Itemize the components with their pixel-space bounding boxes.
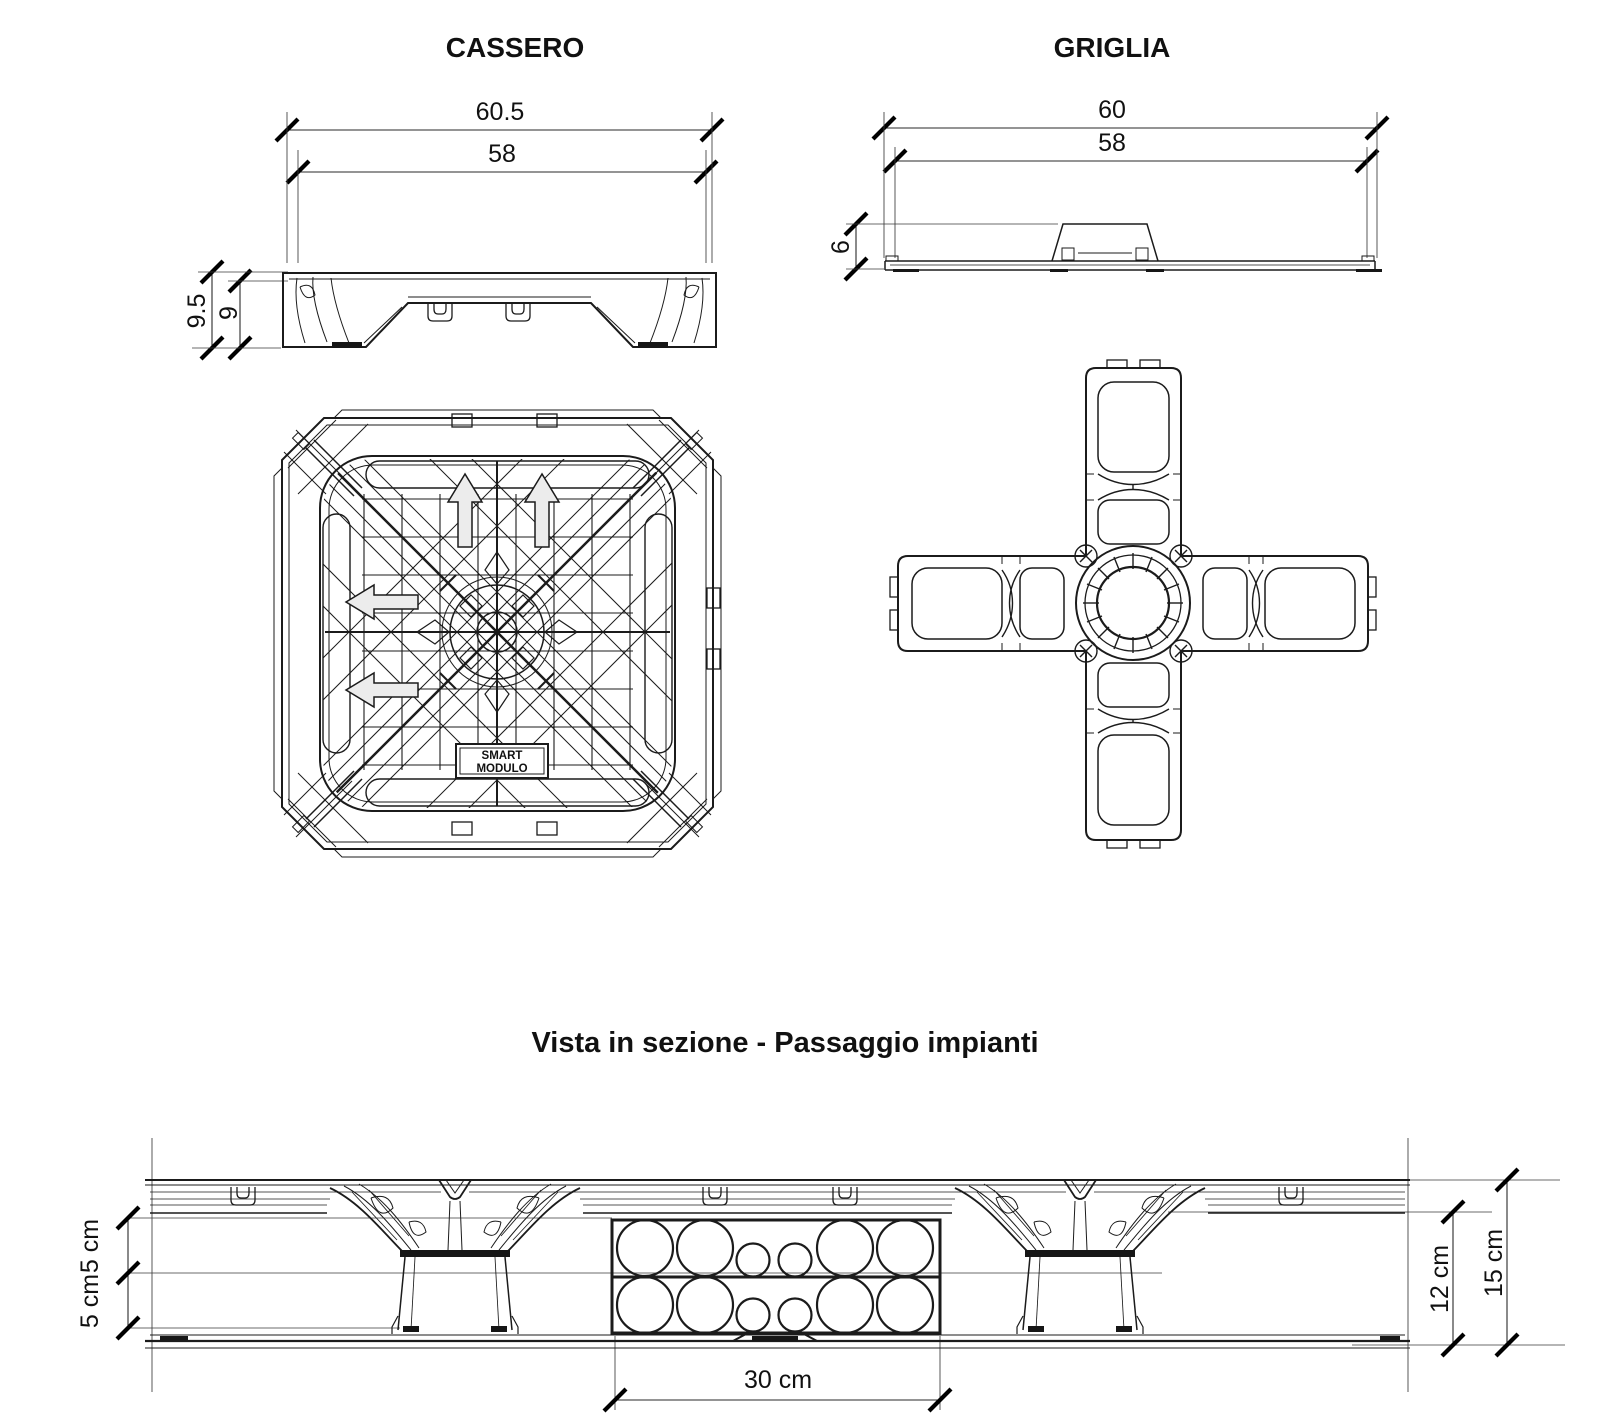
brand-label-line1: SMART — [482, 750, 523, 762]
up-arrow-icon — [448, 474, 482, 547]
cassero-title: CASSERO — [446, 32, 584, 63]
cassero-elevation-view: CASSERO 60.5 58 9.5 9 — [183, 32, 723, 359]
cassero-slab-tab — [833, 1187, 857, 1205]
dim-section-lower-gap: 5 cm — [76, 1274, 104, 1328]
section-title: Vista in sezione - Passaggio impianti — [531, 1027, 1038, 1059]
griglia-arm-panels — [912, 382, 1355, 825]
brand-label-box: SMART MODULO — [456, 744, 548, 778]
dim-cassero-body-height: 9 — [215, 306, 243, 320]
dim-griglia-height: 6 — [827, 240, 855, 254]
dim-cassero-outer-width: 60.5 — [476, 98, 525, 126]
griglia-arm-pinches — [1002, 474, 1263, 733]
section-leg-funnel — [955, 1180, 1205, 1334]
dim-griglia-outer-width: 60 — [1098, 96, 1126, 124]
cassero-profile-drawing — [283, 273, 716, 348]
dim-section-total-height: 15 cm — [1480, 1229, 1508, 1297]
dim-griglia-inner-width: 58 — [1098, 129, 1126, 157]
cassero-slab-tab — [703, 1187, 727, 1205]
cassero-slab-tab — [506, 303, 530, 321]
griglia-profile-drawing — [885, 224, 1382, 272]
dim-section-duct-width: 30 cm — [744, 1366, 812, 1394]
section-base — [145, 1334, 1410, 1348]
section-pipe-duct — [612, 1220, 940, 1333]
griglia-arm-ticks — [1002, 474, 1263, 733]
dim-cassero-total-height: 9.5 — [183, 294, 211, 329]
dim-section-inner-height: 12 cm — [1426, 1245, 1454, 1313]
brand-label-line2: MODULO — [476, 763, 527, 775]
left-arrow-icon — [346, 585, 418, 619]
griglia-title: GRIGLIA — [1054, 32, 1171, 63]
technical-drawing-sheet: CASSERO 60.5 58 9.5 9 — [0, 0, 1598, 1424]
section-slab — [145, 1180, 1410, 1213]
cassero-slab-tab — [1279, 1187, 1303, 1205]
dim-section-upper-gap: 5 cm — [76, 1219, 104, 1273]
dim-cassero-inner-width: 58 — [488, 140, 516, 168]
section-leg-funnel — [330, 1180, 580, 1334]
section-view: Vista in sezione - Passaggio impianti — [76, 1027, 1565, 1411]
cassero-slab-tab — [231, 1187, 255, 1205]
griglia-plan-view — [890, 360, 1376, 848]
cassero-slab-tab — [428, 303, 452, 321]
griglia-elevation-view: GRIGLIA 60 58 6 — [827, 32, 1388, 280]
cassero-plan-view: SMART MODULO — [225, 360, 769, 904]
